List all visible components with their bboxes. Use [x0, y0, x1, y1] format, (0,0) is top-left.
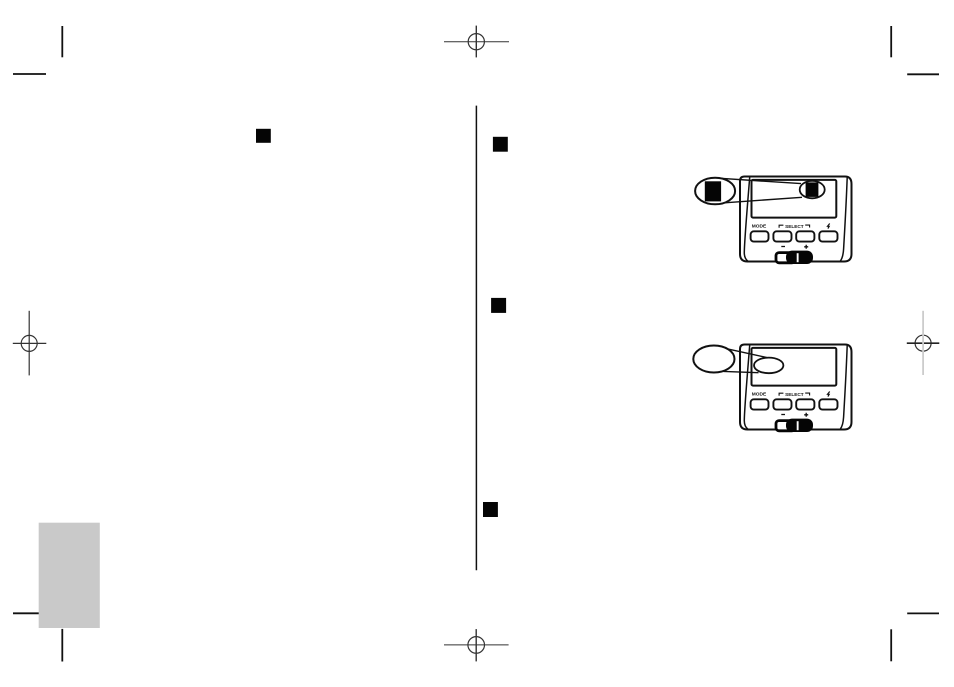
- svg-text:SELECT: SELECT: [785, 392, 804, 397]
- svg-text:SELECT: SELECT: [785, 224, 804, 229]
- svg-text:MODE: MODE: [752, 224, 767, 229]
- svg-text:MODE: MODE: [752, 392, 767, 397]
